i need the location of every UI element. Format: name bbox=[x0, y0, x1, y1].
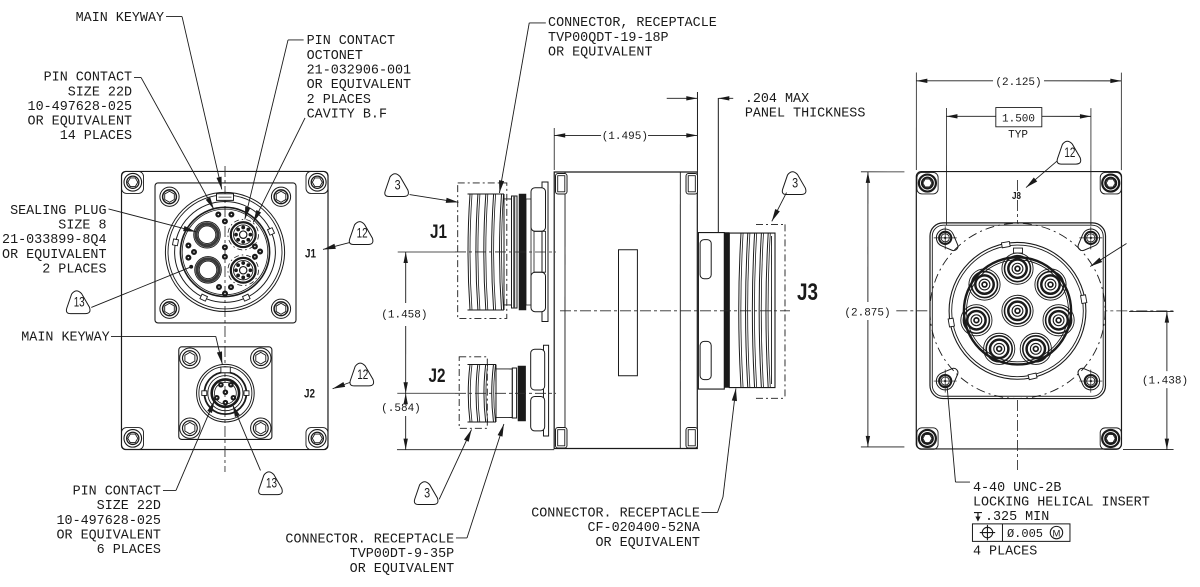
svg-text:12: 12 bbox=[357, 366, 368, 382]
svg-text:(1.458): (1.458) bbox=[381, 309, 427, 321]
svg-text:MAIN KEYWAY: MAIN KEYWAY bbox=[76, 11, 164, 26]
svg-text:14 PLACES: 14 PLACES bbox=[60, 129, 132, 144]
svg-text:OR EQUIVALENT: OR EQUIVALENT bbox=[595, 536, 699, 551]
svg-text:.204 MAX: .204 MAX bbox=[745, 92, 809, 107]
svg-text:1.500: 1.500 bbox=[1002, 114, 1035, 126]
svg-text:(2.125): (2.125) bbox=[995, 77, 1041, 89]
svg-text:SEALING PLUG: SEALING PLUG bbox=[10, 204, 106, 219]
svg-text:PIN CONTACT: PIN CONTACT bbox=[307, 34, 395, 49]
svg-text:J3: J3 bbox=[797, 279, 818, 306]
svg-text:CONNECTOR. RECEPTACLE: CONNECTOR. RECEPTACLE bbox=[285, 532, 454, 547]
svg-text:12: 12 bbox=[357, 224, 368, 240]
svg-text:CONNECTOR. RECEPTACLE: CONNECTOR. RECEPTACLE bbox=[531, 506, 700, 521]
svg-text:J3: J3 bbox=[1012, 190, 1021, 202]
svg-text:3: 3 bbox=[424, 484, 430, 500]
svg-text:(1.495): (1.495) bbox=[602, 131, 648, 143]
svg-text:M: M bbox=[1053, 528, 1061, 539]
svg-text:PIN CONTACT: PIN CONTACT bbox=[44, 71, 132, 86]
svg-text:TVP00QDT-19-18P: TVP00QDT-19-18P bbox=[548, 31, 669, 46]
svg-text:LOCKING HELICAL INSERT: LOCKING HELICAL INSERT bbox=[973, 496, 1150, 511]
svg-text:10-497628-025: 10-497628-025 bbox=[56, 514, 160, 529]
svg-text:(1.438): (1.438) bbox=[1142, 376, 1188, 388]
svg-text:13: 13 bbox=[74, 294, 85, 310]
svg-text:6 PLACES: 6 PLACES bbox=[97, 543, 161, 558]
svg-text:OCTONET: OCTONET bbox=[307, 49, 363, 64]
svg-text:21-033899-8Q4: 21-033899-8Q4 bbox=[2, 233, 106, 248]
svg-text:4-40 UNC-2B: 4-40 UNC-2B bbox=[973, 481, 1061, 496]
svg-text:.325 MIN: .325 MIN bbox=[985, 510, 1049, 525]
svg-text:OR EQUIVALENT: OR EQUIVALENT bbox=[56, 529, 160, 544]
svg-text:J2: J2 bbox=[428, 366, 445, 387]
svg-text:OR EQUIVALENT: OR EQUIVALENT bbox=[2, 248, 106, 263]
svg-text:PANEL THICKNESS: PANEL THICKNESS bbox=[745, 107, 866, 122]
svg-text:OR EQUIVALENT: OR EQUIVALENT bbox=[28, 115, 132, 130]
svg-text:(2.875): (2.875) bbox=[844, 308, 890, 320]
svg-text:2 PLACES: 2 PLACES bbox=[42, 262, 106, 277]
svg-text:TVP00DT-9-35P: TVP00DT-9-35P bbox=[350, 547, 454, 562]
svg-text:PIN CONTACT: PIN CONTACT bbox=[73, 485, 161, 500]
svg-text:Ø.005: Ø.005 bbox=[1007, 527, 1043, 541]
svg-text:CAVITY B.F: CAVITY B.F bbox=[307, 107, 387, 122]
svg-text:2 PLACES: 2 PLACES bbox=[307, 93, 371, 108]
svg-text:4 PLACES: 4 PLACES bbox=[973, 545, 1037, 560]
svg-text:OR EQUIVALENT: OR EQUIVALENT bbox=[307, 78, 411, 93]
svg-text:CF-020400-52NA: CF-020400-52NA bbox=[587, 521, 700, 536]
svg-text:CONNECTOR, RECEPTACLE: CONNECTOR, RECEPTACLE bbox=[548, 16, 717, 31]
svg-text:OR EQUIVALENT: OR EQUIVALENT bbox=[350, 562, 454, 577]
svg-text:3: 3 bbox=[395, 176, 401, 192]
svg-text:OR EQUIVALENT: OR EQUIVALENT bbox=[548, 45, 652, 60]
svg-text:TYP: TYP bbox=[1008, 129, 1028, 141]
svg-text:12: 12 bbox=[1064, 144, 1075, 160]
svg-text:3: 3 bbox=[792, 175, 798, 191]
svg-text:J1: J1 bbox=[305, 246, 316, 260]
svg-text:SIZE 22D: SIZE 22D bbox=[68, 85, 132, 100]
svg-text:(.584): (.584) bbox=[381, 403, 421, 415]
svg-text:21-032906-001: 21-032906-001 bbox=[307, 63, 411, 78]
svg-text:13: 13 bbox=[266, 475, 277, 491]
svg-text:J1: J1 bbox=[430, 222, 447, 243]
svg-text:10-497628-025: 10-497628-025 bbox=[28, 100, 132, 115]
svg-text:SIZE 22D: SIZE 22D bbox=[97, 499, 161, 514]
svg-text:MAIN KEYWAY: MAIN KEYWAY bbox=[21, 330, 109, 345]
svg-text:SIZE 8: SIZE 8 bbox=[58, 219, 106, 234]
svg-text:J2: J2 bbox=[304, 386, 315, 400]
